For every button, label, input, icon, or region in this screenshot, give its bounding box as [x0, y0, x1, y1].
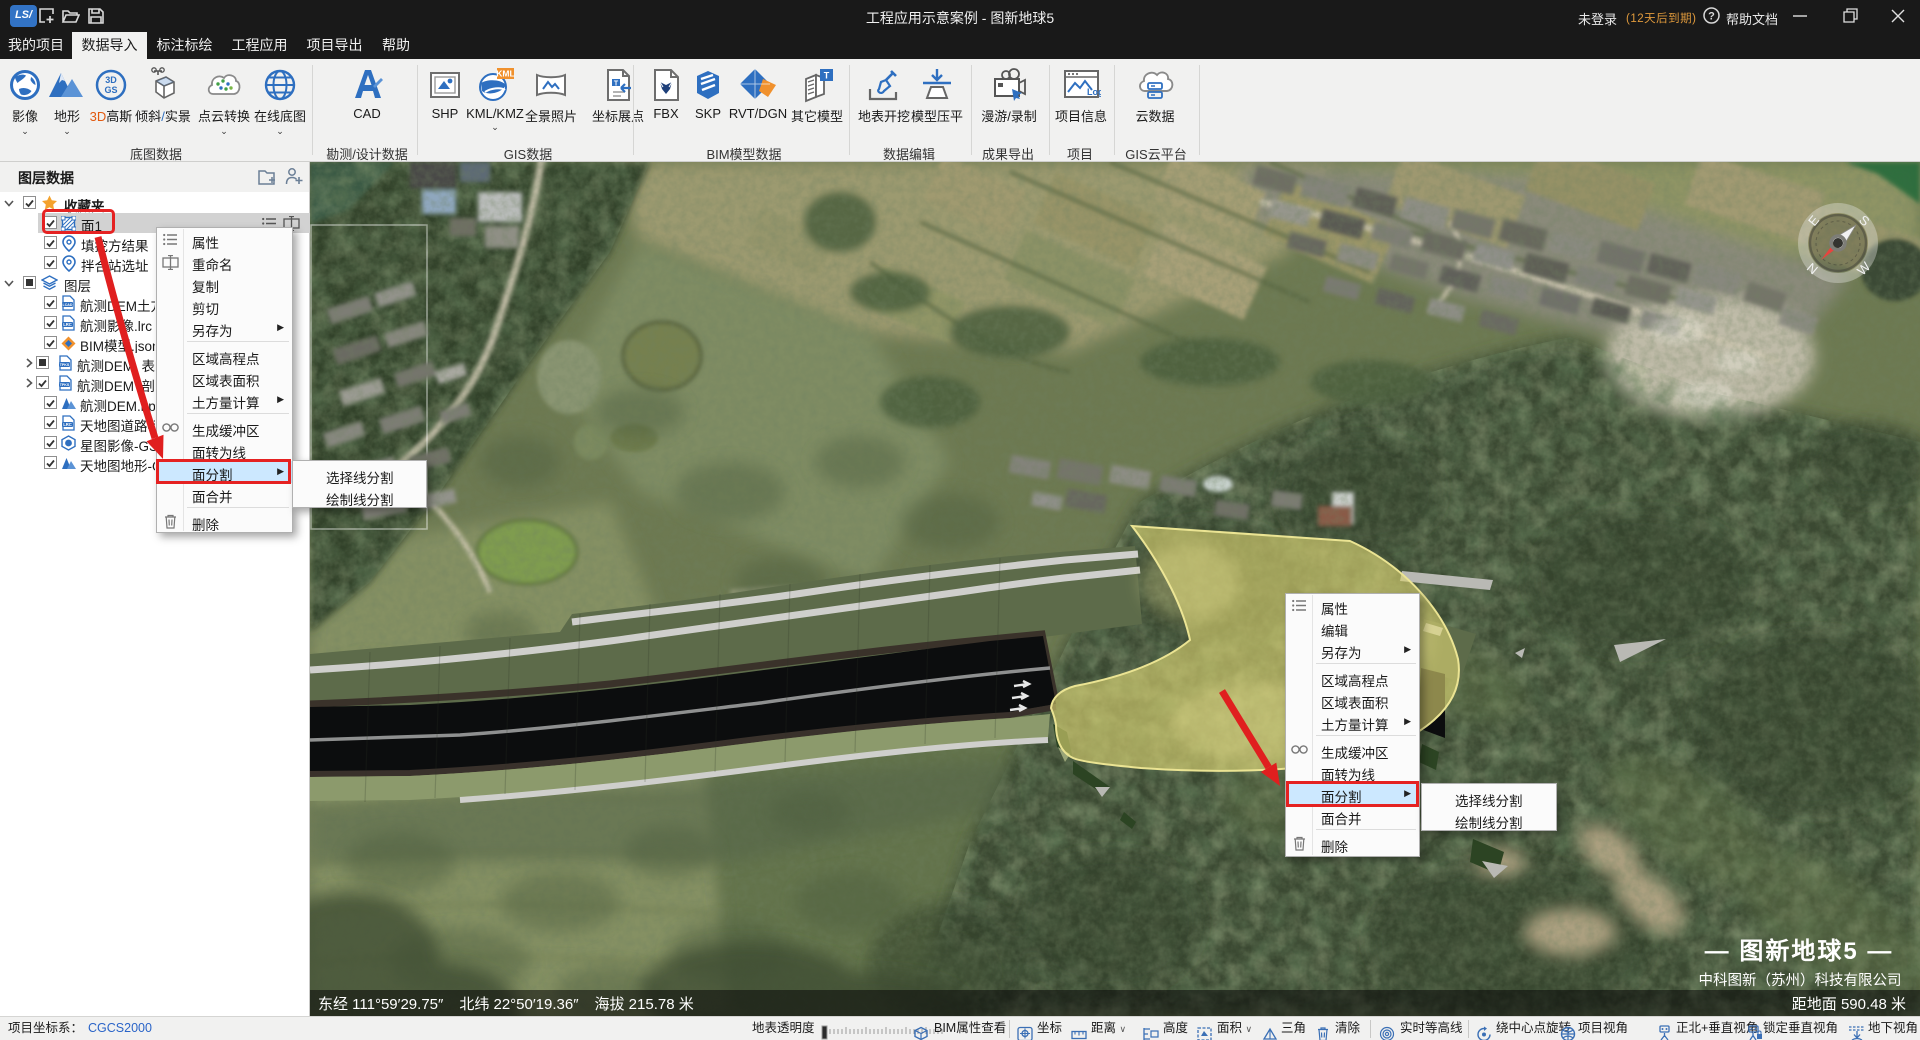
svg-text:LRC: LRC: [63, 422, 72, 427]
svg-text:T: T: [614, 81, 619, 88]
svg-text:?: ?: [1708, 11, 1715, 23]
svg-text:TPKS: TPKS: [60, 383, 70, 387]
svg-text:中科图新（苏州）科技有限公司: 中科图新（苏州）科技有限公司: [1699, 972, 1902, 989]
svg-text:距地面 590.48 米: 距地面 590.48 米: [1792, 996, 1906, 1013]
svg-text:Logo: Logo: [1087, 87, 1101, 97]
svg-text:KML: KML: [496, 69, 514, 79]
svg-text:LCAD: LCAD: [63, 303, 73, 307]
svg-text:TPKS: TPKS: [60, 363, 70, 367]
svg-text:GS: GS: [104, 85, 117, 95]
svg-text:东经 111°59′29.75″北纬 22°50′19.36: 东经 111°59′29.75″北纬 22°50′19.36″海拔 215.78…: [318, 996, 694, 1013]
svg-text:3D: 3D: [105, 75, 117, 85]
svg-text:LRC: LRC: [63, 322, 72, 327]
svg-text:T: T: [824, 71, 830, 81]
svg-text:— 图新地球5 —: — 图新地球5 —: [1705, 937, 1894, 965]
